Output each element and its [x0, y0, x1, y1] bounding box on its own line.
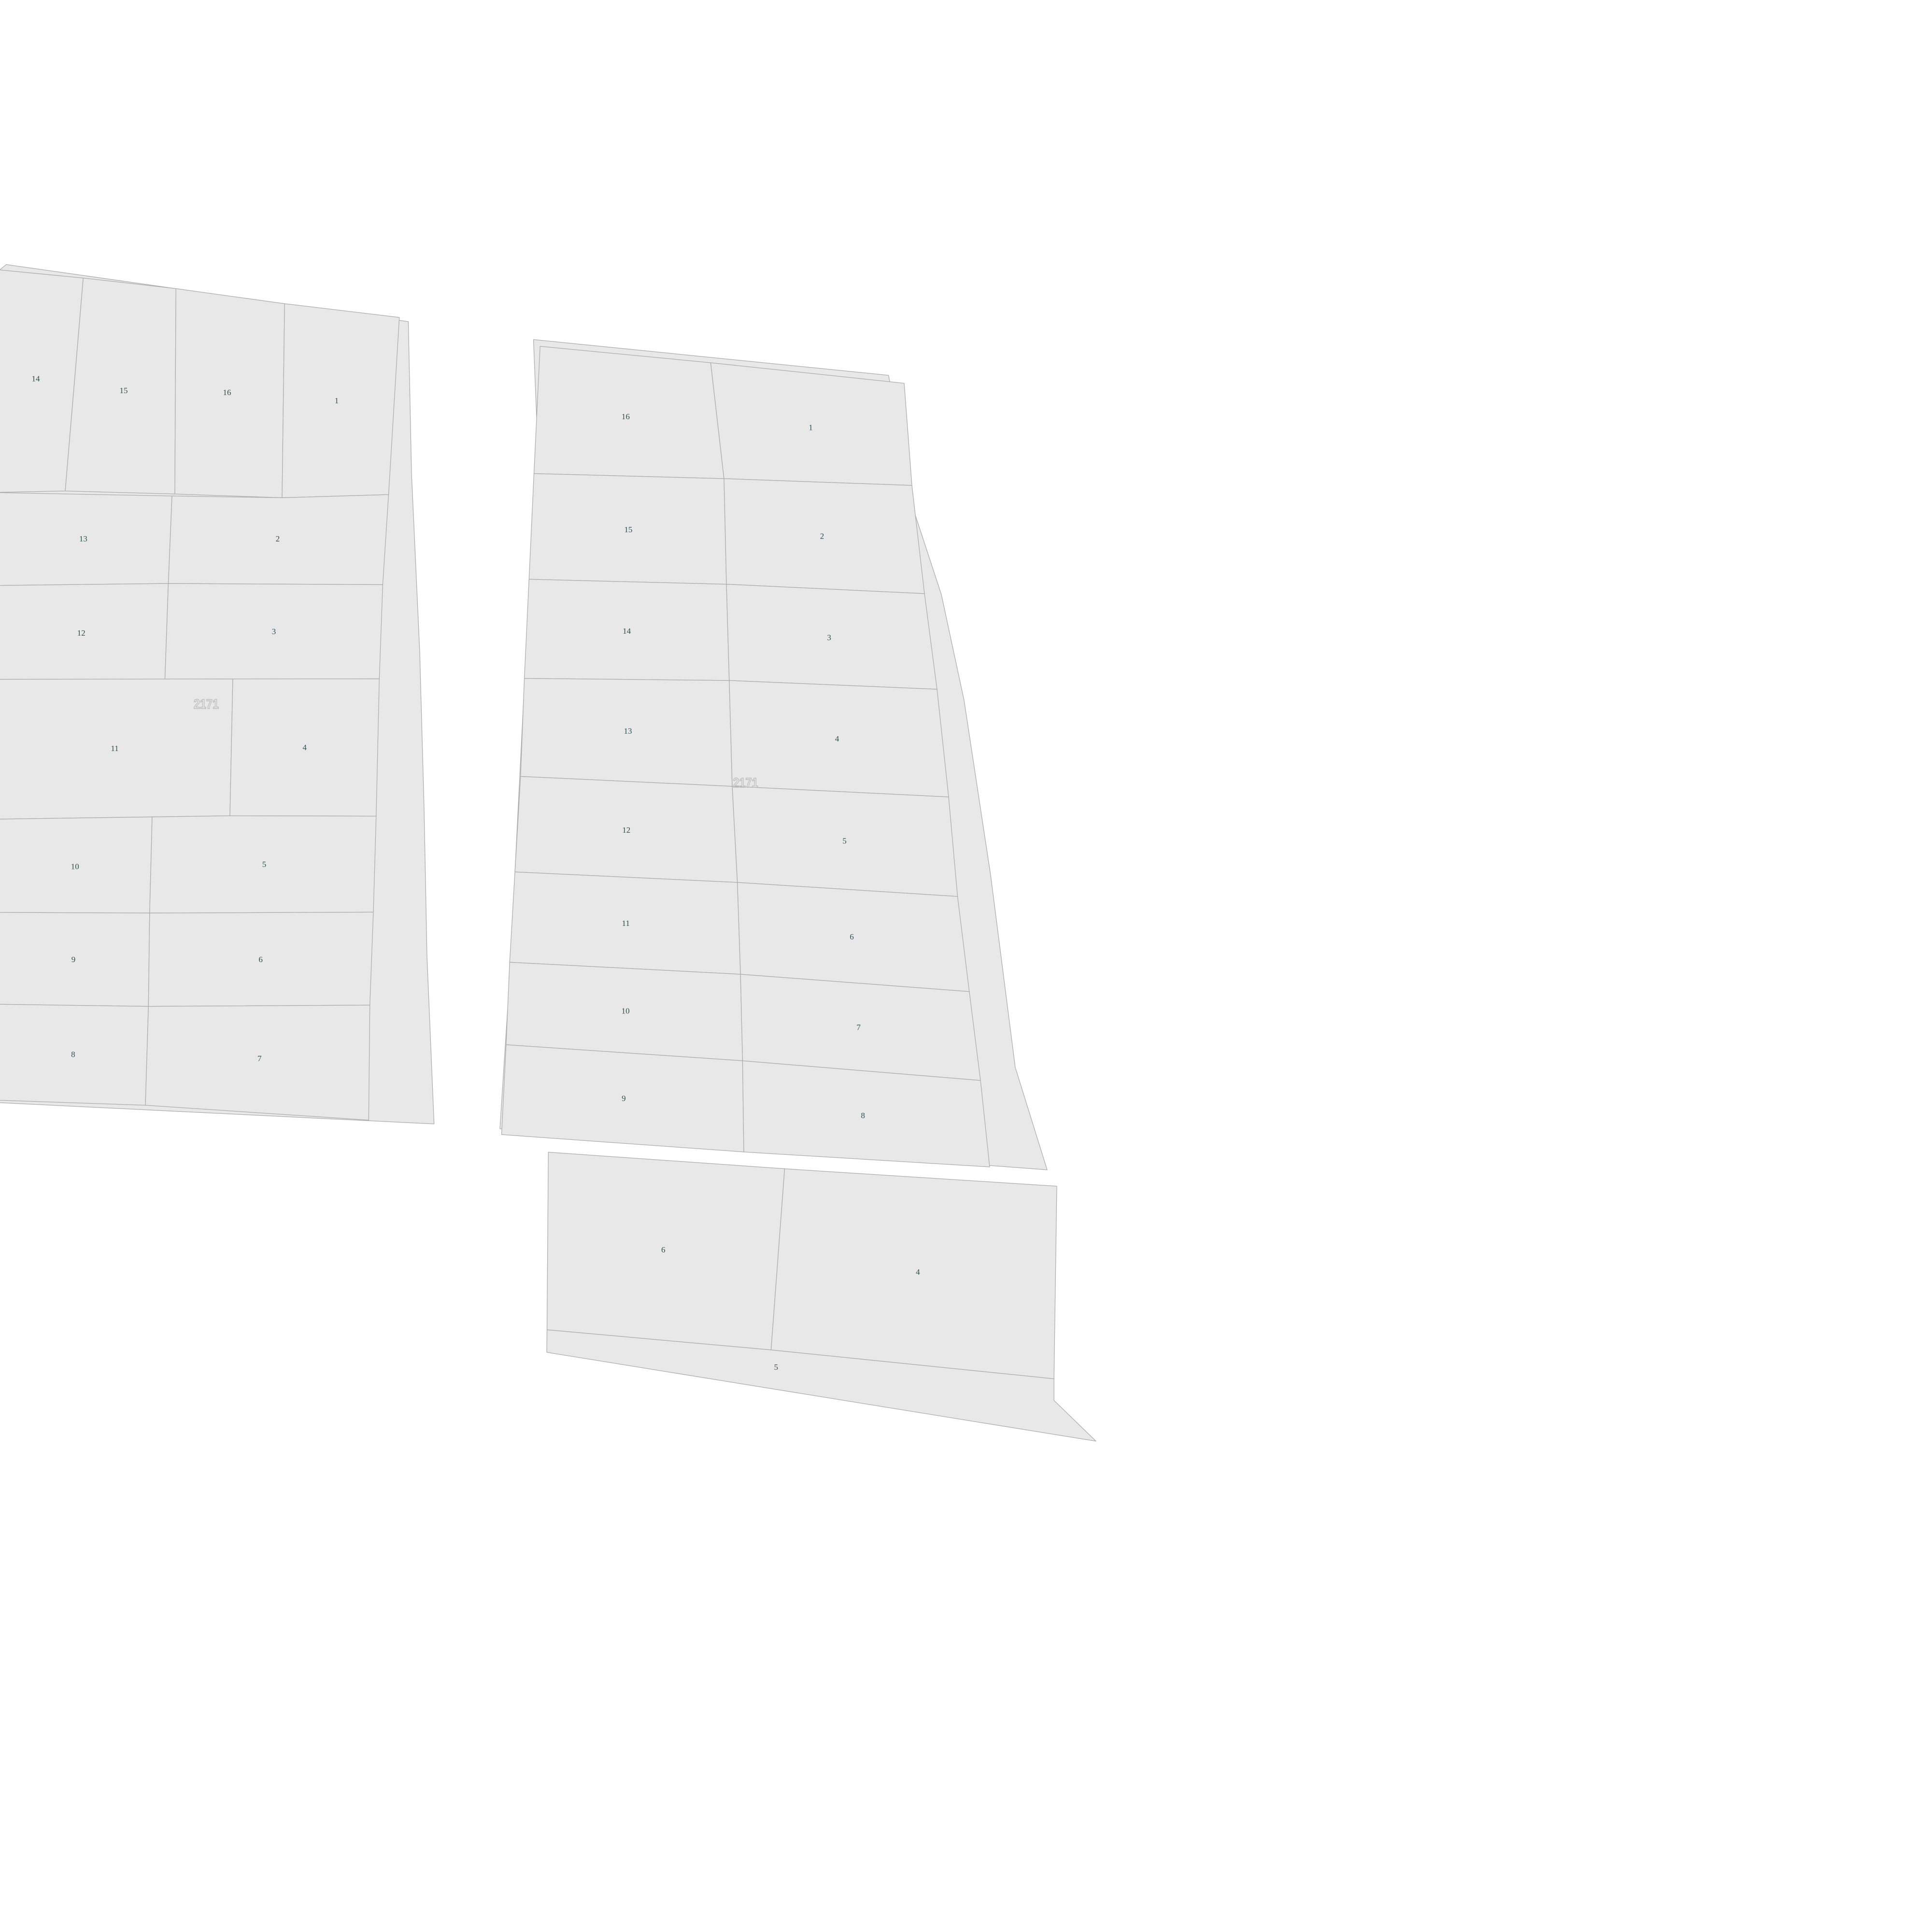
svg-text:15: 15 — [624, 525, 632, 534]
svg-text:4: 4 — [916, 1267, 920, 1277]
svg-text:10: 10 — [71, 862, 79, 871]
svg-text:3: 3 — [827, 633, 831, 642]
svg-text:10: 10 — [622, 1007, 630, 1016]
svg-text:1: 1 — [335, 396, 339, 405]
svg-text:2: 2 — [276, 534, 280, 543]
svg-text:7: 7 — [257, 1054, 262, 1063]
svg-text:13: 13 — [79, 534, 87, 543]
svg-text:2171: 2171 — [194, 696, 219, 711]
svg-text:12: 12 — [77, 628, 85, 638]
svg-text:2: 2 — [820, 532, 824, 541]
svg-text:2171: 2171 — [733, 775, 758, 790]
svg-text:5: 5 — [262, 860, 267, 869]
svg-text:9: 9 — [71, 955, 76, 964]
svg-text:4: 4 — [303, 743, 307, 752]
svg-text:3: 3 — [272, 627, 276, 636]
svg-text:6: 6 — [850, 932, 854, 941]
svg-text:1: 1 — [809, 423, 813, 432]
svg-text:14: 14 — [623, 626, 631, 636]
svg-text:6: 6 — [661, 1245, 666, 1254]
svg-text:11: 11 — [622, 919, 630, 928]
svg-text:11: 11 — [111, 744, 118, 753]
svg-text:4: 4 — [835, 734, 839, 743]
svg-text:16: 16 — [223, 388, 231, 397]
svg-text:6: 6 — [258, 955, 263, 964]
svg-text:7: 7 — [856, 1023, 861, 1032]
svg-text:14: 14 — [32, 374, 41, 384]
svg-text:8: 8 — [71, 1050, 75, 1059]
svg-text:13: 13 — [624, 726, 632, 736]
svg-text:15: 15 — [120, 386, 128, 395]
svg-text:9: 9 — [622, 1094, 626, 1103]
svg-text:5: 5 — [842, 837, 847, 846]
svg-text:8: 8 — [861, 1111, 865, 1120]
svg-text:16: 16 — [622, 412, 630, 421]
svg-text:12: 12 — [622, 825, 630, 835]
svg-text:5: 5 — [774, 1363, 779, 1372]
